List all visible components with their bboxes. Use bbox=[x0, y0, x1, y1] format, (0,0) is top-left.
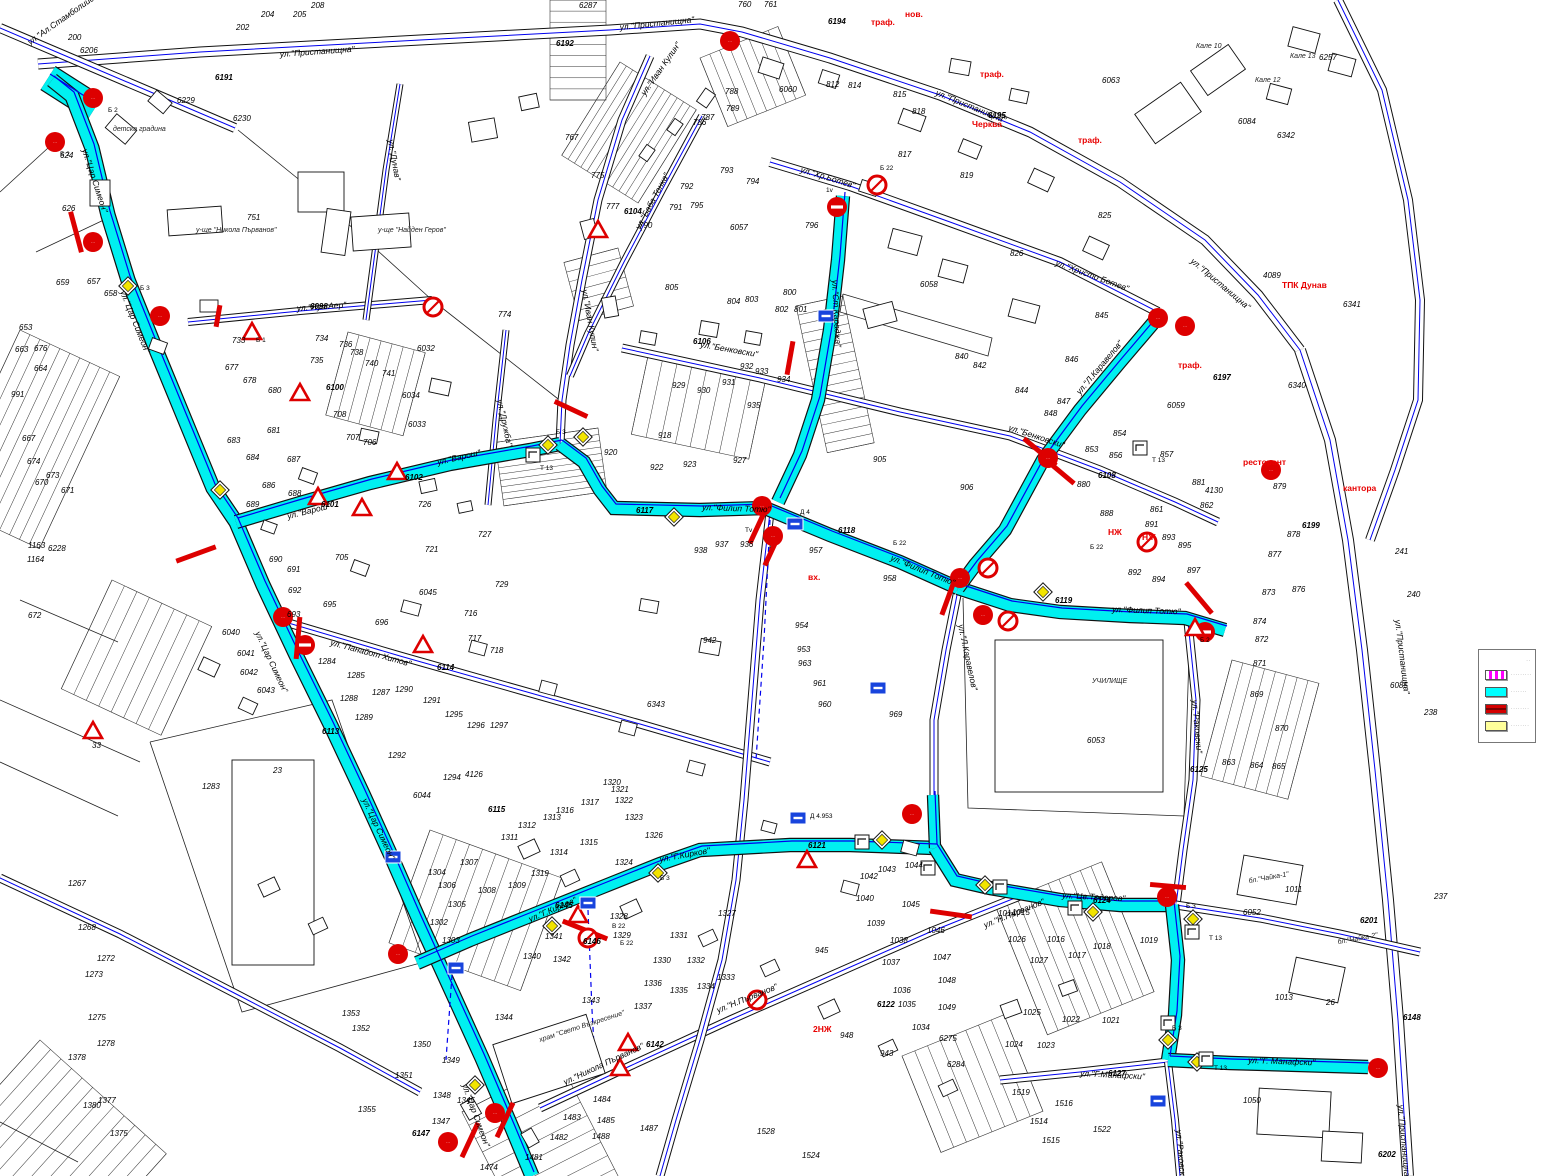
parcel-number-label: 1044 bbox=[905, 861, 923, 870]
parcel-number-label: 854 bbox=[1113, 429, 1127, 438]
parcel-number-label: 942 bbox=[703, 636, 717, 645]
parcel-number-label: 1039 bbox=[867, 919, 885, 928]
parcel-number-label: 1312 bbox=[518, 821, 536, 830]
parcel-number-label: 878 bbox=[1287, 530, 1301, 539]
sign-code-label: Т 13 bbox=[1152, 457, 1165, 464]
parcel-number-label: 815 bbox=[893, 90, 907, 99]
sign-code-label: Б 22 bbox=[880, 165, 894, 172]
svg-text:···: ··· bbox=[1376, 1066, 1380, 1071]
parcel-number-label: 26 bbox=[1325, 998, 1335, 1007]
parcel-number-label: 204 bbox=[260, 10, 275, 19]
info-sign-icon[interactable] bbox=[580, 897, 596, 909]
parcel-number-label: 6044 bbox=[413, 791, 431, 800]
parcel-number-label: 840 bbox=[955, 352, 969, 361]
legend-item-label: ······· bbox=[1511, 689, 1527, 694]
parcel-number-label: 6341 bbox=[1343, 300, 1361, 309]
red-marker-icon[interactable]: ··· bbox=[902, 804, 922, 824]
parcel-number-label: 1043 bbox=[878, 865, 896, 874]
sign-code-label: Т 13 bbox=[1209, 935, 1222, 942]
parcel-number-label: 1327 bbox=[718, 909, 736, 918]
parcel-number-label: 6053 bbox=[1087, 736, 1105, 745]
parcel-number-label: 880 bbox=[1077, 480, 1091, 489]
parcel-number-label: 1315 bbox=[580, 838, 598, 847]
parcel-number-label: 727 bbox=[478, 530, 492, 539]
annotation-red-label: НЖ bbox=[1142, 532, 1156, 542]
parcel-number-label: 791 bbox=[669, 203, 682, 212]
parcel-number-label: 6060 bbox=[779, 85, 797, 94]
parcel-number-label: 6343 bbox=[647, 700, 665, 709]
info-sign-icon[interactable] bbox=[787, 518, 803, 530]
parcel-number-label: 862 bbox=[1200, 501, 1214, 510]
red-marker-icon[interactable]: ··· bbox=[720, 31, 740, 51]
parcel-number-label: 23 bbox=[272, 766, 282, 775]
facility-label: Кале 10 bbox=[1196, 43, 1222, 50]
legend-title: ·· bbox=[1485, 658, 1531, 666]
parcel-number-label: 847 bbox=[1057, 397, 1071, 406]
parcel-number-label: 814 bbox=[848, 81, 862, 90]
parcel-number-label: 1305 bbox=[448, 900, 466, 909]
parcel-number-label: 1045 bbox=[902, 900, 920, 909]
parcel-number-label: 678 bbox=[243, 376, 257, 385]
no-stopping-sign-icon[interactable] bbox=[979, 559, 997, 577]
sign-code-label: В 22 bbox=[612, 923, 626, 930]
red-marker-icon[interactable]: ··· bbox=[1175, 316, 1195, 336]
parcel-number-label: 812 bbox=[826, 80, 840, 89]
sign-code-label: Б 22 bbox=[893, 540, 907, 547]
annotation-red-label: кантора bbox=[1343, 483, 1377, 493]
parcel-number-label: 677 bbox=[225, 363, 239, 372]
parcel-number-label: 893 bbox=[1162, 533, 1176, 542]
parcel-number-label: 877 bbox=[1268, 550, 1282, 559]
parcel-number-label: 718 bbox=[490, 646, 504, 655]
road-number-label: 6194 bbox=[828, 17, 846, 26]
parcel-number-label: 1290 bbox=[395, 685, 413, 694]
road-number-label: 6119 bbox=[1055, 596, 1073, 605]
red-marker-icon[interactable]: ··· bbox=[1038, 448, 1058, 468]
sign-code-label: Б 2 bbox=[60, 151, 70, 158]
svg-text:···: ··· bbox=[728, 39, 732, 44]
legend-rows: ································ bbox=[1485, 666, 1531, 734]
info-sign-icon[interactable] bbox=[1150, 1095, 1166, 1107]
facility-label: УЧИЛИЩЕ bbox=[1091, 678, 1127, 685]
parcel-number-label: 200 bbox=[67, 33, 82, 42]
parcel-number-label: 6045 bbox=[419, 588, 437, 597]
svg-text:···: ··· bbox=[981, 613, 985, 618]
parcel-number-label: 961 bbox=[813, 679, 826, 688]
parcel-number-label: 1316 bbox=[556, 806, 574, 815]
parcel-number-label: 6257 bbox=[1319, 53, 1337, 62]
parcel-number-label: 1483 bbox=[563, 1113, 581, 1122]
parcel-number-label: 1163 bbox=[28, 541, 46, 550]
parcel-number-label: 1267 bbox=[68, 879, 86, 888]
parcel-number-label: 706 bbox=[363, 438, 377, 447]
parcel-number-label: 705 bbox=[335, 553, 349, 562]
parcel-number-label: 6228 bbox=[48, 544, 66, 553]
facility-label: Кале 12 bbox=[1255, 77, 1281, 84]
parcel-number-label: 945 bbox=[815, 946, 829, 955]
info-sign-icon[interactable] bbox=[790, 812, 806, 824]
parcel-number-label: 692 bbox=[288, 586, 302, 595]
parcel-number-label: 1019 bbox=[1140, 936, 1158, 945]
parcel-number-label: 796 bbox=[805, 221, 819, 230]
parcel-number-label: 1011 bbox=[1285, 885, 1302, 894]
facility-label: у-ще "Никола Първанов" bbox=[195, 227, 277, 234]
map-viewport[interactable]: ········································… bbox=[0, 0, 1541, 1176]
parcel-number-label: 1273 bbox=[85, 970, 103, 979]
parcel-number-label: 690 bbox=[269, 555, 283, 564]
annotation-red-label: траф. bbox=[871, 17, 895, 27]
sign-code-label: Б 3 bbox=[1186, 903, 1196, 910]
parcel-number-label: 846 bbox=[1065, 355, 1079, 364]
parcel-number-label: 1295 bbox=[445, 710, 463, 719]
sign-code-label: Б 3 bbox=[140, 285, 150, 292]
road-number-label: 6202 bbox=[1378, 1150, 1396, 1159]
annotation-red-label: траф. bbox=[1078, 135, 1102, 145]
red-marker-icon[interactable]: ··· bbox=[83, 232, 103, 252]
parcel-number-label: 991 bbox=[11, 390, 24, 399]
legend-item-label: ········ bbox=[1511, 706, 1530, 711]
road-number-label: 6192 bbox=[556, 39, 574, 48]
parcel-number-label: 1516 bbox=[1055, 1099, 1073, 1108]
parcel-number-label: 671 bbox=[61, 486, 74, 495]
parcel-number-label: 845 bbox=[1095, 311, 1109, 320]
red-marker-icon[interactable]: ··· bbox=[1157, 887, 1177, 907]
parcel-number-label: 672 bbox=[28, 611, 42, 620]
parcel-number-label: 1288 bbox=[340, 694, 358, 703]
parcel-number-label: 1304 bbox=[428, 868, 446, 877]
parcel-number-label: 930 bbox=[697, 386, 711, 395]
parcel-number-label: 853 bbox=[1085, 445, 1099, 454]
parcel-number-label: 734 bbox=[315, 334, 329, 343]
sign-code-label: Б 3 bbox=[556, 429, 566, 436]
red-marker-icon[interactable]: ··· bbox=[1368, 1058, 1388, 1078]
parcel-number-label: 1528 bbox=[757, 1127, 775, 1136]
parcel-number-label: 696 bbox=[375, 618, 389, 627]
table-sign-icon[interactable] bbox=[855, 835, 869, 849]
parcel-number-label: 688 bbox=[288, 489, 302, 498]
table-sign-icon[interactable] bbox=[993, 880, 1007, 894]
parcel-number-label: 708 bbox=[333, 410, 347, 419]
parcel-number-label: 6229 bbox=[177, 96, 195, 105]
parcel-number-label: 4130 bbox=[1205, 486, 1223, 495]
parcel-number-label: 1164 bbox=[27, 555, 45, 564]
parcel-number-label: 1307 bbox=[460, 858, 478, 867]
parcel-number-label: 954 bbox=[795, 621, 809, 630]
facility-label: у-ще "Найден Геров" bbox=[377, 226, 446, 234]
parcel-number-label: 943 bbox=[880, 1049, 894, 1058]
parcel-number-label: 888 bbox=[1100, 509, 1114, 518]
parcel-number-label: 1308 bbox=[478, 886, 496, 895]
parcel-number-label: 1323 bbox=[625, 813, 643, 822]
road-number-label: 6201 bbox=[1360, 916, 1378, 925]
parcel-number-label: 1342 bbox=[553, 955, 571, 964]
parcel-number-label: 802 bbox=[775, 305, 789, 314]
sign-code-label: Тv bbox=[745, 527, 753, 534]
parcel-number-label: 1328 bbox=[610, 912, 628, 921]
parcel-number-label: 1027 bbox=[1030, 956, 1048, 965]
no-entry-sign-icon[interactable] bbox=[295, 635, 315, 655]
parcel-number-label: 693 bbox=[287, 610, 301, 619]
parcel-number-label: 920 bbox=[604, 448, 618, 457]
parcel-number-label: 1294 bbox=[443, 773, 461, 782]
svg-text:···: ··· bbox=[1046, 456, 1050, 461]
parcel-number-label: 1485 bbox=[597, 1116, 615, 1125]
parcel-number-label: 1291 bbox=[423, 696, 441, 705]
parcel-number-label: 1333 bbox=[717, 973, 735, 982]
parcel-number-label: 740 bbox=[365, 359, 379, 368]
parcel-number-label: 681 bbox=[267, 426, 280, 435]
parcel-number-label: 869 bbox=[1250, 690, 1264, 699]
parcel-number-label: 1306 bbox=[438, 881, 456, 890]
parcel-number-label: 1285 bbox=[347, 671, 365, 680]
parcel-number-label: 1324 bbox=[615, 858, 633, 867]
red-marker-icon[interactable]: ··· bbox=[763, 526, 783, 546]
parcel-number-label: 1336 bbox=[644, 979, 662, 988]
parcel-number-label: 922 bbox=[650, 463, 664, 472]
parcel-number-label: 1309 bbox=[508, 881, 526, 890]
red-marker-icon[interactable]: ··· bbox=[438, 1132, 458, 1152]
parcel-number-label: 6042 bbox=[240, 668, 258, 677]
no-stopping-sign-icon[interactable] bbox=[424, 298, 442, 316]
road-number-label: 6100 bbox=[326, 383, 344, 392]
parcel-number-label: 1048 bbox=[938, 976, 956, 985]
facility-label: Кале 13 bbox=[1290, 53, 1316, 60]
parcel-number-label: 761 bbox=[764, 0, 777, 9]
parcel-number-label: 927 bbox=[733, 456, 747, 465]
parcel-number-label: 663 bbox=[15, 345, 29, 354]
parcel-number-label: 935 bbox=[747, 401, 761, 410]
red-marker-icon[interactable]: ··· bbox=[388, 944, 408, 964]
parcel-number-label: 1330 bbox=[653, 956, 671, 965]
parcel-number-label: 881 bbox=[1192, 478, 1205, 487]
parcel-number-label: 659 bbox=[56, 278, 70, 287]
parcel-number-label: 1040 bbox=[856, 894, 874, 903]
parcel-number-label: 4089 bbox=[1263, 271, 1281, 280]
parcel-number-label: 801 bbox=[794, 305, 807, 314]
parcel-number-label: 842 bbox=[973, 361, 987, 370]
parcel-number-label: 1340 bbox=[523, 952, 541, 961]
parcel-number-label: 957 bbox=[809, 546, 823, 555]
red-marker-icon[interactable]: ··· bbox=[45, 132, 65, 152]
parcel-number-label: 1322 bbox=[615, 796, 633, 805]
parcel-number-label: 856 bbox=[1109, 451, 1123, 460]
parcel-number-label: 1047 bbox=[933, 953, 951, 962]
parcel-number-label: 1317 bbox=[581, 798, 599, 807]
legend-swatch-icon bbox=[1485, 670, 1507, 680]
table-sign-icon[interactable] bbox=[921, 861, 935, 875]
parcel-number-label: 1326 bbox=[645, 831, 663, 840]
parcel-number-label: 1311 bbox=[501, 833, 518, 842]
parcel-number-label: 1050 bbox=[1243, 1096, 1261, 1105]
parcel-number-label: 1347 bbox=[432, 1117, 450, 1126]
parcel-number-label: 844 bbox=[1015, 386, 1029, 395]
parcel-number-label: 664 bbox=[34, 364, 48, 373]
svg-text:···: ··· bbox=[493, 1111, 497, 1116]
road-number-label: 6118 bbox=[838, 526, 856, 535]
parcel-number-label: 1302 bbox=[430, 918, 448, 927]
table-sign-icon[interactable] bbox=[526, 448, 540, 462]
svg-text:···: ··· bbox=[1165, 895, 1169, 900]
parcel-number-label: 6057 bbox=[730, 223, 748, 232]
parcel-number-label: 865 bbox=[1272, 762, 1286, 771]
parcel-number-label: 673 bbox=[46, 471, 60, 480]
legend-swatch-icon bbox=[1485, 721, 1507, 731]
svg-text:···: ··· bbox=[91, 96, 95, 101]
red-marker-icon[interactable]: ··· bbox=[150, 306, 170, 326]
parcel-number-label: 1022 bbox=[1062, 1015, 1080, 1024]
parcel-number-label: 1013 bbox=[1275, 993, 1293, 1002]
parcel-number-label: 6342 bbox=[1277, 131, 1295, 140]
sign-code-label: Т 13 bbox=[540, 465, 553, 472]
sign-code-label: Д 4 bbox=[800, 509, 810, 516]
parcel-number-label: 1287 bbox=[372, 688, 390, 697]
parcel-number-label: 1296 bbox=[467, 721, 485, 730]
parcel-number-label: 879 bbox=[1273, 482, 1287, 491]
parcel-number-label: 1482 bbox=[550, 1133, 568, 1142]
parcel-number-label: 1484 bbox=[593, 1095, 611, 1104]
svg-text:···: ··· bbox=[281, 615, 285, 620]
info-sign-icon[interactable] bbox=[448, 962, 464, 974]
parcel-number-label: 960 bbox=[818, 700, 832, 709]
parcel-number-label: 6206 bbox=[80, 46, 98, 55]
parcel-number-label: 1289 bbox=[355, 713, 373, 722]
table-sign-icon[interactable] bbox=[1185, 925, 1199, 939]
parcel-number-label: 794 bbox=[746, 177, 760, 186]
parcel-number-label: 1314 bbox=[550, 848, 568, 857]
sign-code-label: Б 22 bbox=[620, 940, 634, 947]
table-sign-icon[interactable] bbox=[1068, 901, 1082, 915]
parcel-number-label: 1515 bbox=[1042, 1136, 1060, 1145]
table-sign-icon[interactable] bbox=[1199, 1052, 1213, 1066]
red-marker-icon[interactable]: ··· bbox=[973, 605, 993, 625]
svg-text:···: ··· bbox=[53, 140, 57, 145]
parcel-number-label: 208 bbox=[310, 1, 325, 10]
annotation-red-label: вх. bbox=[808, 572, 820, 582]
parcel-number-label: 760 bbox=[738, 0, 752, 9]
annotation-red-label: Черква bbox=[972, 119, 1002, 129]
parcel-number-label: 6084 bbox=[1238, 117, 1256, 126]
parcel-number-label: 1275 bbox=[88, 1013, 106, 1022]
parcel-number-label: 793 bbox=[720, 166, 734, 175]
sign-code-label: Б 2 bbox=[1200, 637, 1210, 644]
parcel-number-label: 6059 bbox=[1167, 401, 1185, 410]
parcel-number-label: 657 bbox=[87, 277, 101, 286]
parcel-number-label: 241 bbox=[1394, 547, 1408, 556]
parcel-number-label: 1334 bbox=[697, 982, 715, 991]
road-number-label: 6199 bbox=[1302, 521, 1320, 530]
red-marker-icon[interactable]: ··· bbox=[1148, 308, 1168, 328]
parcel-number-label: 1481 bbox=[525, 1153, 543, 1162]
annotation-red-label: траф. bbox=[1178, 360, 1202, 370]
parcel-number-label: 1375 bbox=[110, 1129, 128, 1138]
parcel-number-label: 735 bbox=[310, 356, 324, 365]
parcel-number-label: 1329 bbox=[613, 931, 631, 940]
parcel-number-label: 658 bbox=[104, 289, 118, 298]
info-sign-icon[interactable] bbox=[818, 310, 834, 322]
parcel-number-label: 1038 bbox=[890, 936, 908, 945]
parcel-number-label: 1268 bbox=[78, 923, 96, 932]
road-number-label: 6102 bbox=[405, 473, 423, 482]
legend-item: ······· bbox=[1485, 683, 1531, 700]
road-number-label: 6147 bbox=[412, 1129, 430, 1138]
parcel-number-label: 931 bbox=[722, 378, 735, 387]
parcel-number-label: 1017 bbox=[1068, 951, 1086, 960]
parcel-number-label: 1025 bbox=[1023, 1008, 1041, 1017]
legend-item-label: ········ bbox=[1511, 723, 1530, 728]
svg-text:···: ··· bbox=[91, 240, 95, 245]
parcel-number-label: 1024 bbox=[1005, 1040, 1023, 1049]
sign-code-label: Б 22 bbox=[1090, 544, 1104, 551]
parcel-number-label: 1488 bbox=[592, 1132, 610, 1141]
svg-text:···: ··· bbox=[1269, 468, 1273, 473]
parcel-number-label: 1292 bbox=[388, 751, 406, 760]
parcel-number-label: 1332 bbox=[687, 956, 705, 965]
sign-code-label: Д 4.953 bbox=[810, 813, 833, 820]
parcel-number-label: 240 bbox=[1406, 590, 1421, 599]
road-number-label: 6114 bbox=[437, 663, 455, 672]
parcel-number-label: 686 bbox=[262, 481, 276, 490]
no-stopping-sign-icon[interactable] bbox=[868, 176, 886, 194]
parcel-number-label: 905 bbox=[873, 455, 887, 464]
parcel-number-label: 1016 bbox=[1047, 935, 1065, 944]
parcel-number-label: 929 bbox=[672, 381, 686, 390]
parcel-number-label: 683 bbox=[227, 436, 241, 445]
info-sign-icon[interactable] bbox=[870, 682, 886, 694]
parcel-number-label: 1319 bbox=[531, 869, 549, 878]
red-marker-icon[interactable]: ··· bbox=[485, 1103, 505, 1123]
svg-text:···: ··· bbox=[1183, 324, 1187, 329]
legend-item-label: ········· bbox=[1511, 672, 1531, 677]
parcel-number-label: 1522 bbox=[1093, 1125, 1111, 1134]
map-canvas[interactable]: ········································… bbox=[0, 0, 1541, 1176]
parcel-number-label: 691 bbox=[287, 565, 300, 574]
parcel-number-label: 1297 bbox=[490, 721, 508, 730]
parcel-number-label: 6340 bbox=[1288, 381, 1306, 390]
parcel-number-label: 817 bbox=[898, 150, 912, 159]
legend-item: ········ bbox=[1485, 700, 1531, 717]
parcel-number-label: 676 bbox=[34, 344, 48, 353]
parcel-number-label: 1035 bbox=[898, 1000, 916, 1009]
parcel-number-label: 906 bbox=[960, 483, 974, 492]
parcel-number-label: 1341 bbox=[545, 932, 563, 941]
legend-swatch-icon bbox=[1485, 687, 1507, 697]
road-number-label: 6142 bbox=[646, 1040, 664, 1049]
sign-code-label: Б 3 bbox=[660, 875, 670, 882]
parcel-number-label: 6043 bbox=[257, 686, 275, 695]
parcel-number-label: 741 bbox=[382, 369, 395, 378]
parcel-number-label: 238 bbox=[1423, 708, 1438, 717]
parcel-number-label: 826 bbox=[1010, 249, 1024, 258]
parcel-number-label: 687 bbox=[287, 455, 301, 464]
red-marker-icon[interactable]: ··· bbox=[83, 88, 103, 108]
table-sign-icon[interactable] bbox=[1133, 441, 1147, 455]
annotation-red-label: ТПК Дунав bbox=[1282, 280, 1327, 290]
parcel-number-label: 1283 bbox=[202, 782, 220, 791]
road-number-label: 6113 bbox=[322, 727, 340, 736]
no-entry-sign-icon[interactable] bbox=[827, 197, 847, 217]
parcel-number-label: 892 bbox=[1128, 568, 1142, 577]
parcel-number-label: 738 bbox=[350, 348, 364, 357]
parcel-number-label: 895 bbox=[1178, 541, 1192, 550]
parcel-number-label: 680 bbox=[268, 386, 282, 395]
parcel-number-label: 874 bbox=[1253, 617, 1267, 626]
parcel-number-label: 777 bbox=[606, 202, 620, 211]
parcel-number-label: 963 bbox=[798, 659, 812, 668]
parcel-number-label: 726 bbox=[418, 500, 432, 509]
no-stopping-sign-icon[interactable] bbox=[999, 612, 1017, 630]
parcel-number-label: 1018 bbox=[1093, 942, 1111, 951]
svg-text:···: ··· bbox=[771, 534, 775, 539]
